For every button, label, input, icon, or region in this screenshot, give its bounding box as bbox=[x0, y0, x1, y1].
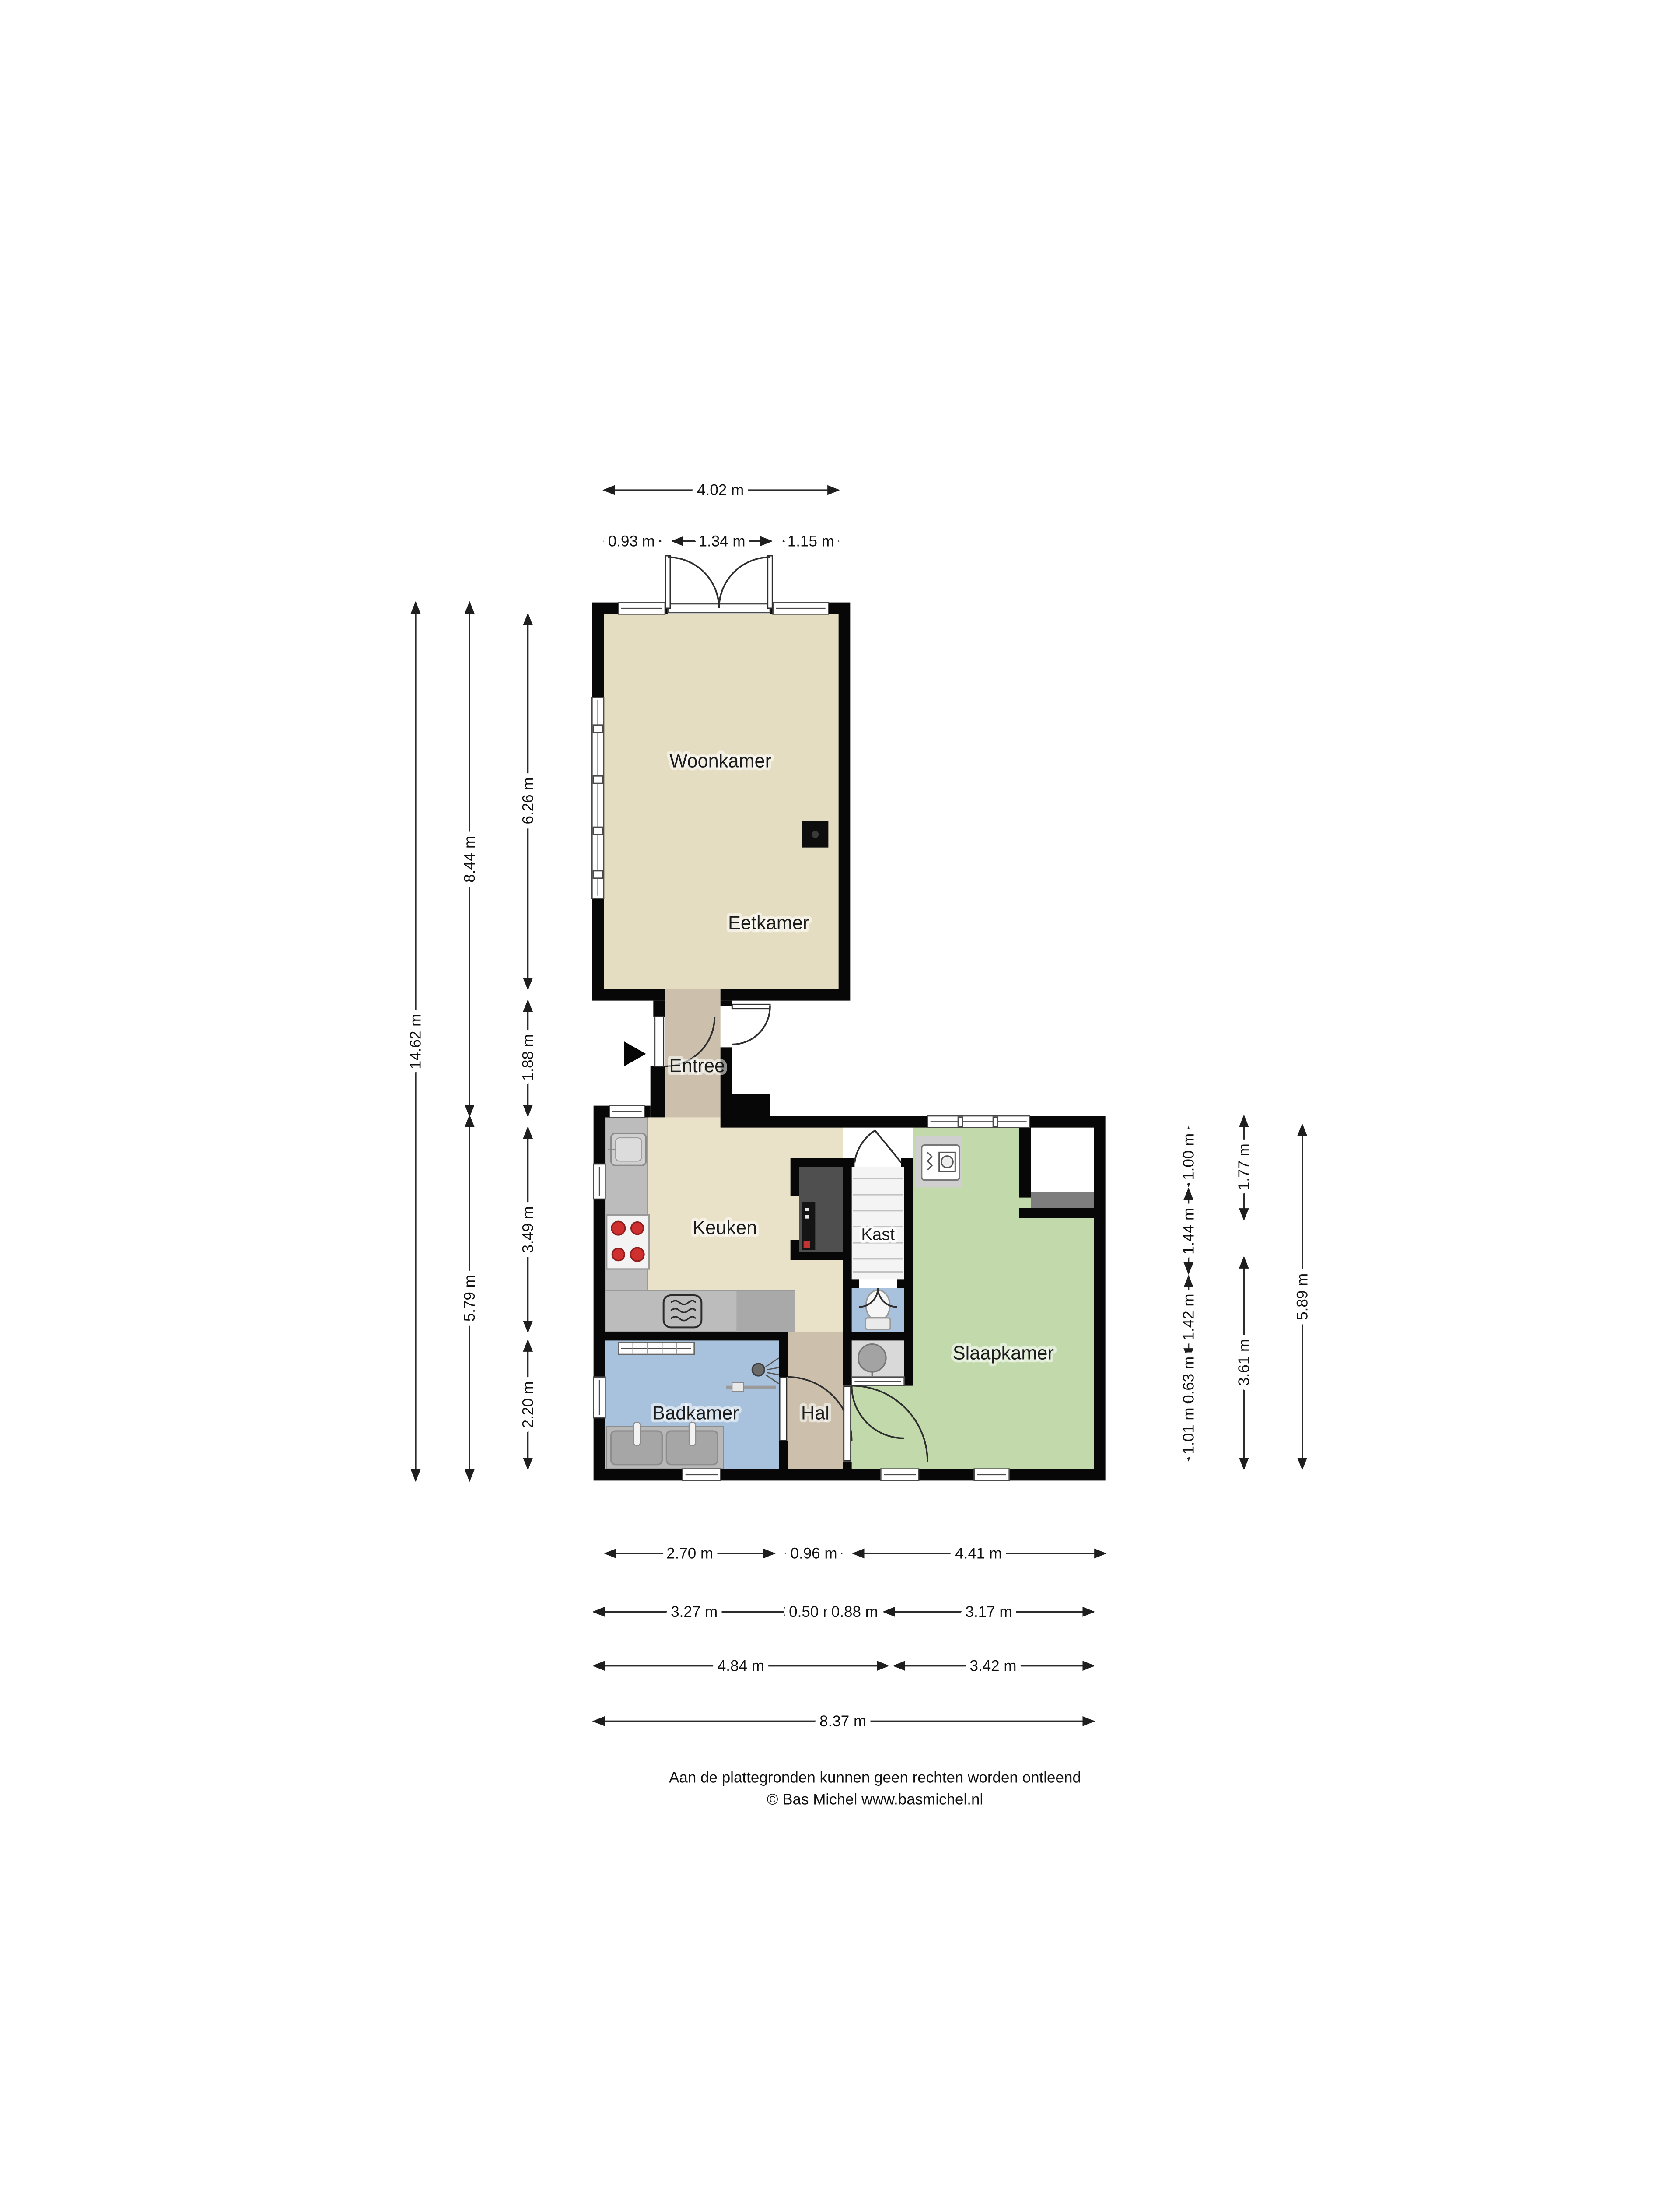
dim-label: 1.34 m bbox=[699, 533, 745, 550]
dim-bottom-r1-b: 0.96 m bbox=[786, 1545, 842, 1562]
footer: Aan de plattegronden kunnen geen rechten… bbox=[669, 1769, 1081, 1808]
dim-label: 3.61 m bbox=[1235, 1339, 1253, 1386]
dimensions-bottom: 2.70 m 0.96 m 4.41 m 3.27 m 0.50 m 0.88 … bbox=[594, 1545, 1106, 1730]
window-keuken-top bbox=[609, 1106, 644, 1118]
room-label-eetkamer: Eetkamer bbox=[728, 912, 809, 933]
dim-label: 1.15 m bbox=[787, 533, 834, 550]
kitchen-sink-basin bbox=[616, 1138, 642, 1161]
door-kast bbox=[854, 1130, 901, 1162]
room-label-keuken: Keuken bbox=[693, 1217, 757, 1238]
dimensions-left: 14.62 m 8.44 m 5.79 m 6.26 m 1.88 m 3.49… bbox=[407, 603, 537, 1481]
footer-credit: © Bas Michel www.basmichel.nl bbox=[767, 1791, 983, 1808]
window-badkamer-left bbox=[594, 1377, 605, 1418]
window-woonkamer-top-right bbox=[773, 603, 829, 614]
dim-top-seg3: 1.15 m bbox=[783, 533, 839, 550]
dim-label: 8.44 m bbox=[461, 836, 478, 883]
dim-label: 3.42 m bbox=[970, 1657, 1017, 1674]
chimney-breast bbox=[1031, 1192, 1094, 1208]
dim-bottom-r2-d: 3.17 m bbox=[884, 1603, 1094, 1620]
dim-left-col2-a: 8.44 m bbox=[461, 603, 478, 1116]
dim-right-col1-c: 1.42 m bbox=[1180, 1276, 1197, 1360]
dim-bottom-r4: 8.37 m bbox=[594, 1713, 1094, 1730]
dim-label: 1.42 m bbox=[1180, 1294, 1197, 1341]
dim-bottom-r2-c: 0.88 m bbox=[830, 1603, 881, 1620]
dim-bottom-r1-a: 2.70 m bbox=[605, 1545, 774, 1562]
dim-left-total: 14.62 m bbox=[407, 603, 424, 1481]
floor-hal bbox=[787, 1332, 843, 1469]
window-keuken-left bbox=[594, 1164, 605, 1199]
shower-slider bbox=[732, 1383, 744, 1392]
dim-top-seg1: 0.93 m bbox=[604, 533, 661, 550]
entrance-arrow-icon bbox=[624, 1041, 646, 1066]
burner-icon bbox=[630, 1248, 644, 1261]
dim-label: 0.88 m bbox=[831, 1603, 878, 1620]
dim-label: 1.88 m bbox=[519, 1034, 536, 1081]
floor-kast-stairs bbox=[852, 1167, 904, 1280]
washer-drum-icon bbox=[941, 1156, 953, 1168]
room-label-kast: Kast bbox=[861, 1225, 895, 1244]
burner-icon bbox=[631, 1222, 644, 1234]
dim-right-col2-b: 3.61 m bbox=[1235, 1257, 1253, 1469]
dim-right-col1-d: 0.63 m bbox=[1180, 1357, 1197, 1403]
boiler-valve-icon bbox=[804, 1241, 810, 1248]
dim-label: 0.93 m bbox=[608, 533, 655, 550]
dim-label: 4.02 m bbox=[697, 482, 744, 499]
dim-label: 0.63 m bbox=[1180, 1357, 1197, 1403]
serving-hatch-alcove bbox=[852, 1377, 904, 1386]
dim-left-col3-b: 1.88 m bbox=[519, 1001, 536, 1116]
shower-head-icon bbox=[752, 1364, 764, 1376]
dim-label: 2.20 m bbox=[519, 1381, 536, 1428]
room-label-hal: Hal bbox=[801, 1403, 829, 1424]
toilet-tank bbox=[865, 1318, 890, 1330]
window-slaapkamer-top bbox=[927, 1116, 1029, 1128]
washing-machine bbox=[922, 1145, 960, 1180]
dim-label: 1.00 m bbox=[1180, 1133, 1197, 1180]
boiler-knob-icon bbox=[805, 1215, 808, 1219]
dim-left-col3-a: 6.26 m bbox=[519, 614, 536, 989]
window-slaapkamer-bottom-left bbox=[881, 1469, 919, 1481]
dim-left-col3-d: 2.20 m bbox=[519, 1340, 536, 1469]
dimensions-top: 4.02 m 0.93 m 1.34 m 1.15 m bbox=[604, 482, 839, 550]
room-label-slaapkamer: Slaapkamer bbox=[953, 1343, 1054, 1364]
faucet-icon bbox=[633, 1422, 640, 1445]
footer-disclaimer: Aan de plattegronden kunnen geen rechten… bbox=[669, 1769, 1081, 1786]
dim-label: 5.79 m bbox=[461, 1275, 478, 1322]
dim-label: 8.37 m bbox=[819, 1713, 866, 1730]
dim-left-col2-b: 5.79 m bbox=[461, 1116, 478, 1480]
dim-right-col1-a: 1.00 m bbox=[1180, 1128, 1197, 1186]
room-label-woonkamer: Woonkamer bbox=[669, 750, 771, 771]
toilet-bowl bbox=[866, 1290, 890, 1321]
dim-label: 0.96 m bbox=[791, 1545, 837, 1562]
faucet-icon bbox=[689, 1422, 696, 1445]
french-doors-woonkamer bbox=[665, 556, 772, 613]
dim-label: 2.70 m bbox=[666, 1545, 713, 1562]
burner-icon bbox=[612, 1248, 624, 1261]
window-woonkamer-top-left bbox=[618, 603, 665, 614]
dim-bottom-r3-b: 3.42 m bbox=[894, 1657, 1094, 1674]
dim-right-col2-a: 1.77 m bbox=[1235, 1116, 1253, 1220]
room-label-badkamer: Badkamer bbox=[652, 1403, 738, 1424]
dim-label: 5.89 m bbox=[1294, 1273, 1311, 1320]
dim-label: 3.27 m bbox=[671, 1603, 717, 1620]
room-label-entree: Entree bbox=[669, 1055, 725, 1076]
dim-bottom-r2-a: 3.27 m bbox=[594, 1603, 795, 1620]
window-woonkamer-left bbox=[592, 697, 604, 898]
exterior-notch bbox=[1031, 1128, 1094, 1192]
window-slaapkamer-bottom-right bbox=[974, 1469, 1009, 1481]
dim-label: 4.41 m bbox=[955, 1545, 1002, 1562]
fireplace-dot-icon bbox=[812, 831, 819, 838]
dim-right-col3: 5.89 m bbox=[1294, 1125, 1311, 1469]
dim-right-col1-e: 1.01 m bbox=[1180, 1402, 1197, 1460]
dim-label: 3.49 m bbox=[519, 1206, 536, 1253]
floorplan-canvas: Woonkamer Eetkamer Entree Keuken Kast Sl… bbox=[0, 0, 1680, 2188]
burner-icon bbox=[612, 1221, 625, 1235]
back-door-entree bbox=[732, 1004, 770, 1044]
dim-bottom-r2-b: 0.50 m bbox=[789, 1603, 836, 1620]
dim-label: 6.26 m bbox=[519, 777, 536, 824]
dimensions-right: 1.00 m 1.44 m 1.42 m 0.63 m 1.01 m 1.77 … bbox=[1180, 1116, 1311, 1469]
boiler-knob-icon bbox=[805, 1208, 808, 1211]
dim-bottom-r3-a: 4.84 m bbox=[594, 1657, 888, 1674]
floorplan-page: Woonkamer Eetkamer Entree Keuken Kast Sl… bbox=[0, 0, 1680, 2188]
window-badkamer-bottom bbox=[682, 1469, 721, 1481]
dim-top-total: 4.02 m bbox=[604, 482, 839, 499]
dim-top-seg2: 1.34 m bbox=[672, 533, 772, 550]
dim-label: 0.50 m bbox=[789, 1603, 836, 1620]
dim-left-col3-c: 3.49 m bbox=[519, 1128, 536, 1332]
dim-label: 1.01 m bbox=[1180, 1408, 1197, 1455]
dim-label: 3.17 m bbox=[966, 1603, 1012, 1620]
dim-bottom-r1-c: 4.41 m bbox=[853, 1545, 1106, 1562]
dim-label: 1.77 m bbox=[1235, 1143, 1253, 1190]
dishwasher bbox=[736, 1291, 794, 1332]
dim-label: 14.62 m bbox=[407, 1014, 424, 1069]
dim-right-col1-b: 1.44 m bbox=[1180, 1189, 1197, 1273]
dim-label: 1.44 m bbox=[1180, 1208, 1197, 1255]
floor-slaapkamer-ext bbox=[852, 1386, 913, 1469]
alcove-boiler bbox=[858, 1344, 886, 1372]
dim-label: 4.84 m bbox=[717, 1657, 764, 1674]
